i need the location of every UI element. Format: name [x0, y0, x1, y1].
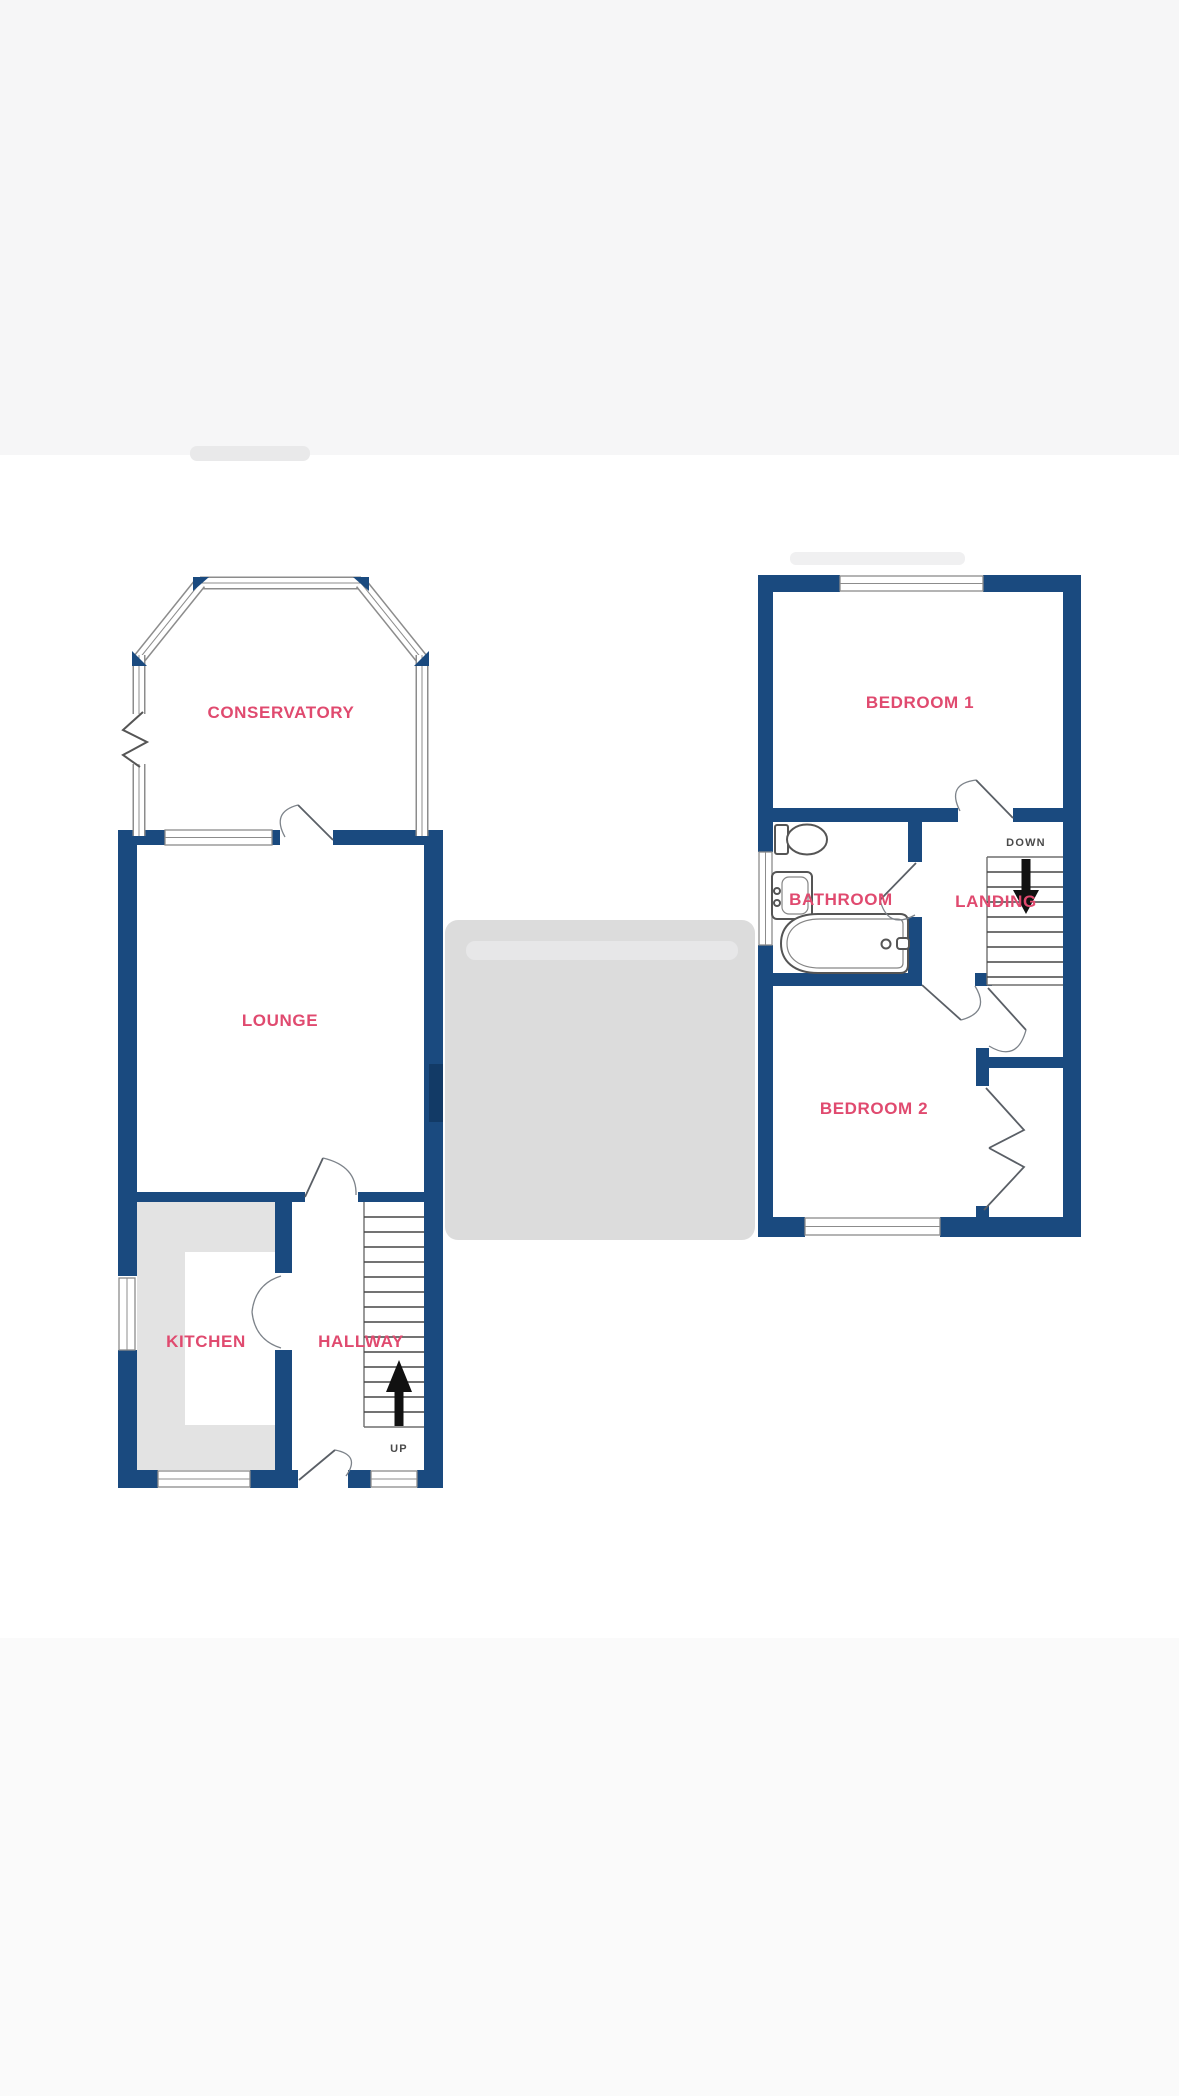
watermark-smudge	[190, 446, 310, 461]
room-label-hallway: HALLWAY	[318, 1332, 404, 1351]
bedroom2-window	[805, 1218, 940, 1235]
room-label-landing: LANDING	[955, 892, 1037, 911]
placeholder-block	[445, 920, 755, 1240]
stairs-down-label: DOWN	[1006, 837, 1046, 849]
kitchen-side-window	[119, 1278, 135, 1350]
staircase-up	[364, 1202, 424, 1427]
lounge-hallway-door	[305, 1158, 356, 1197]
bathtub-icon	[781, 914, 909, 973]
bedroom2-door	[922, 985, 981, 1020]
side-door-stub	[429, 1064, 443, 1122]
top-band	[0, 0, 1179, 455]
room-label-bedroom2: BEDROOM 2	[820, 1099, 928, 1118]
bedroom1-window	[840, 576, 983, 591]
bedroom1-door	[956, 780, 1013, 818]
watermark-smudge	[790, 552, 965, 565]
kitchen-rear-window	[158, 1471, 250, 1487]
bottom-band	[0, 1638, 1179, 2096]
room-label-bedroom1: BEDROOM 1	[866, 693, 974, 712]
cupboard-door	[988, 988, 1026, 1052]
first-floor-doors	[880, 780, 1026, 1210]
staircase-down	[987, 857, 1063, 985]
bathroom-window	[759, 852, 772, 945]
ground-floor-plan: CONSERVATORY LOUNGE KITCHEN HALLWAY UP	[118, 577, 443, 1488]
hallway-window	[371, 1471, 417, 1487]
up-arrow-icon	[386, 1360, 412, 1426]
first-floor-plan: BEDROOM 1 BATHROOM LANDING BEDROOM 2 DOW…	[758, 575, 1081, 1237]
room-label-conservatory: CONSERVATORY	[207, 703, 354, 722]
toilet-icon	[775, 825, 827, 855]
floorplan-image: CONSERVATORY LOUNGE KITCHEN HALLWAY UP	[0, 0, 1179, 2096]
front-door	[299, 1450, 351, 1480]
room-label-bathroom: BATHROOM	[789, 890, 893, 909]
lounge-window	[165, 830, 272, 845]
wall-break-zigzag	[123, 712, 147, 767]
wardrobe-bifold-doors	[984, 1088, 1024, 1210]
room-label-lounge: LOUNGE	[242, 1011, 318, 1030]
stairs-up-label: UP	[390, 1443, 408, 1455]
room-label-kitchen: KITCHEN	[166, 1332, 246, 1351]
